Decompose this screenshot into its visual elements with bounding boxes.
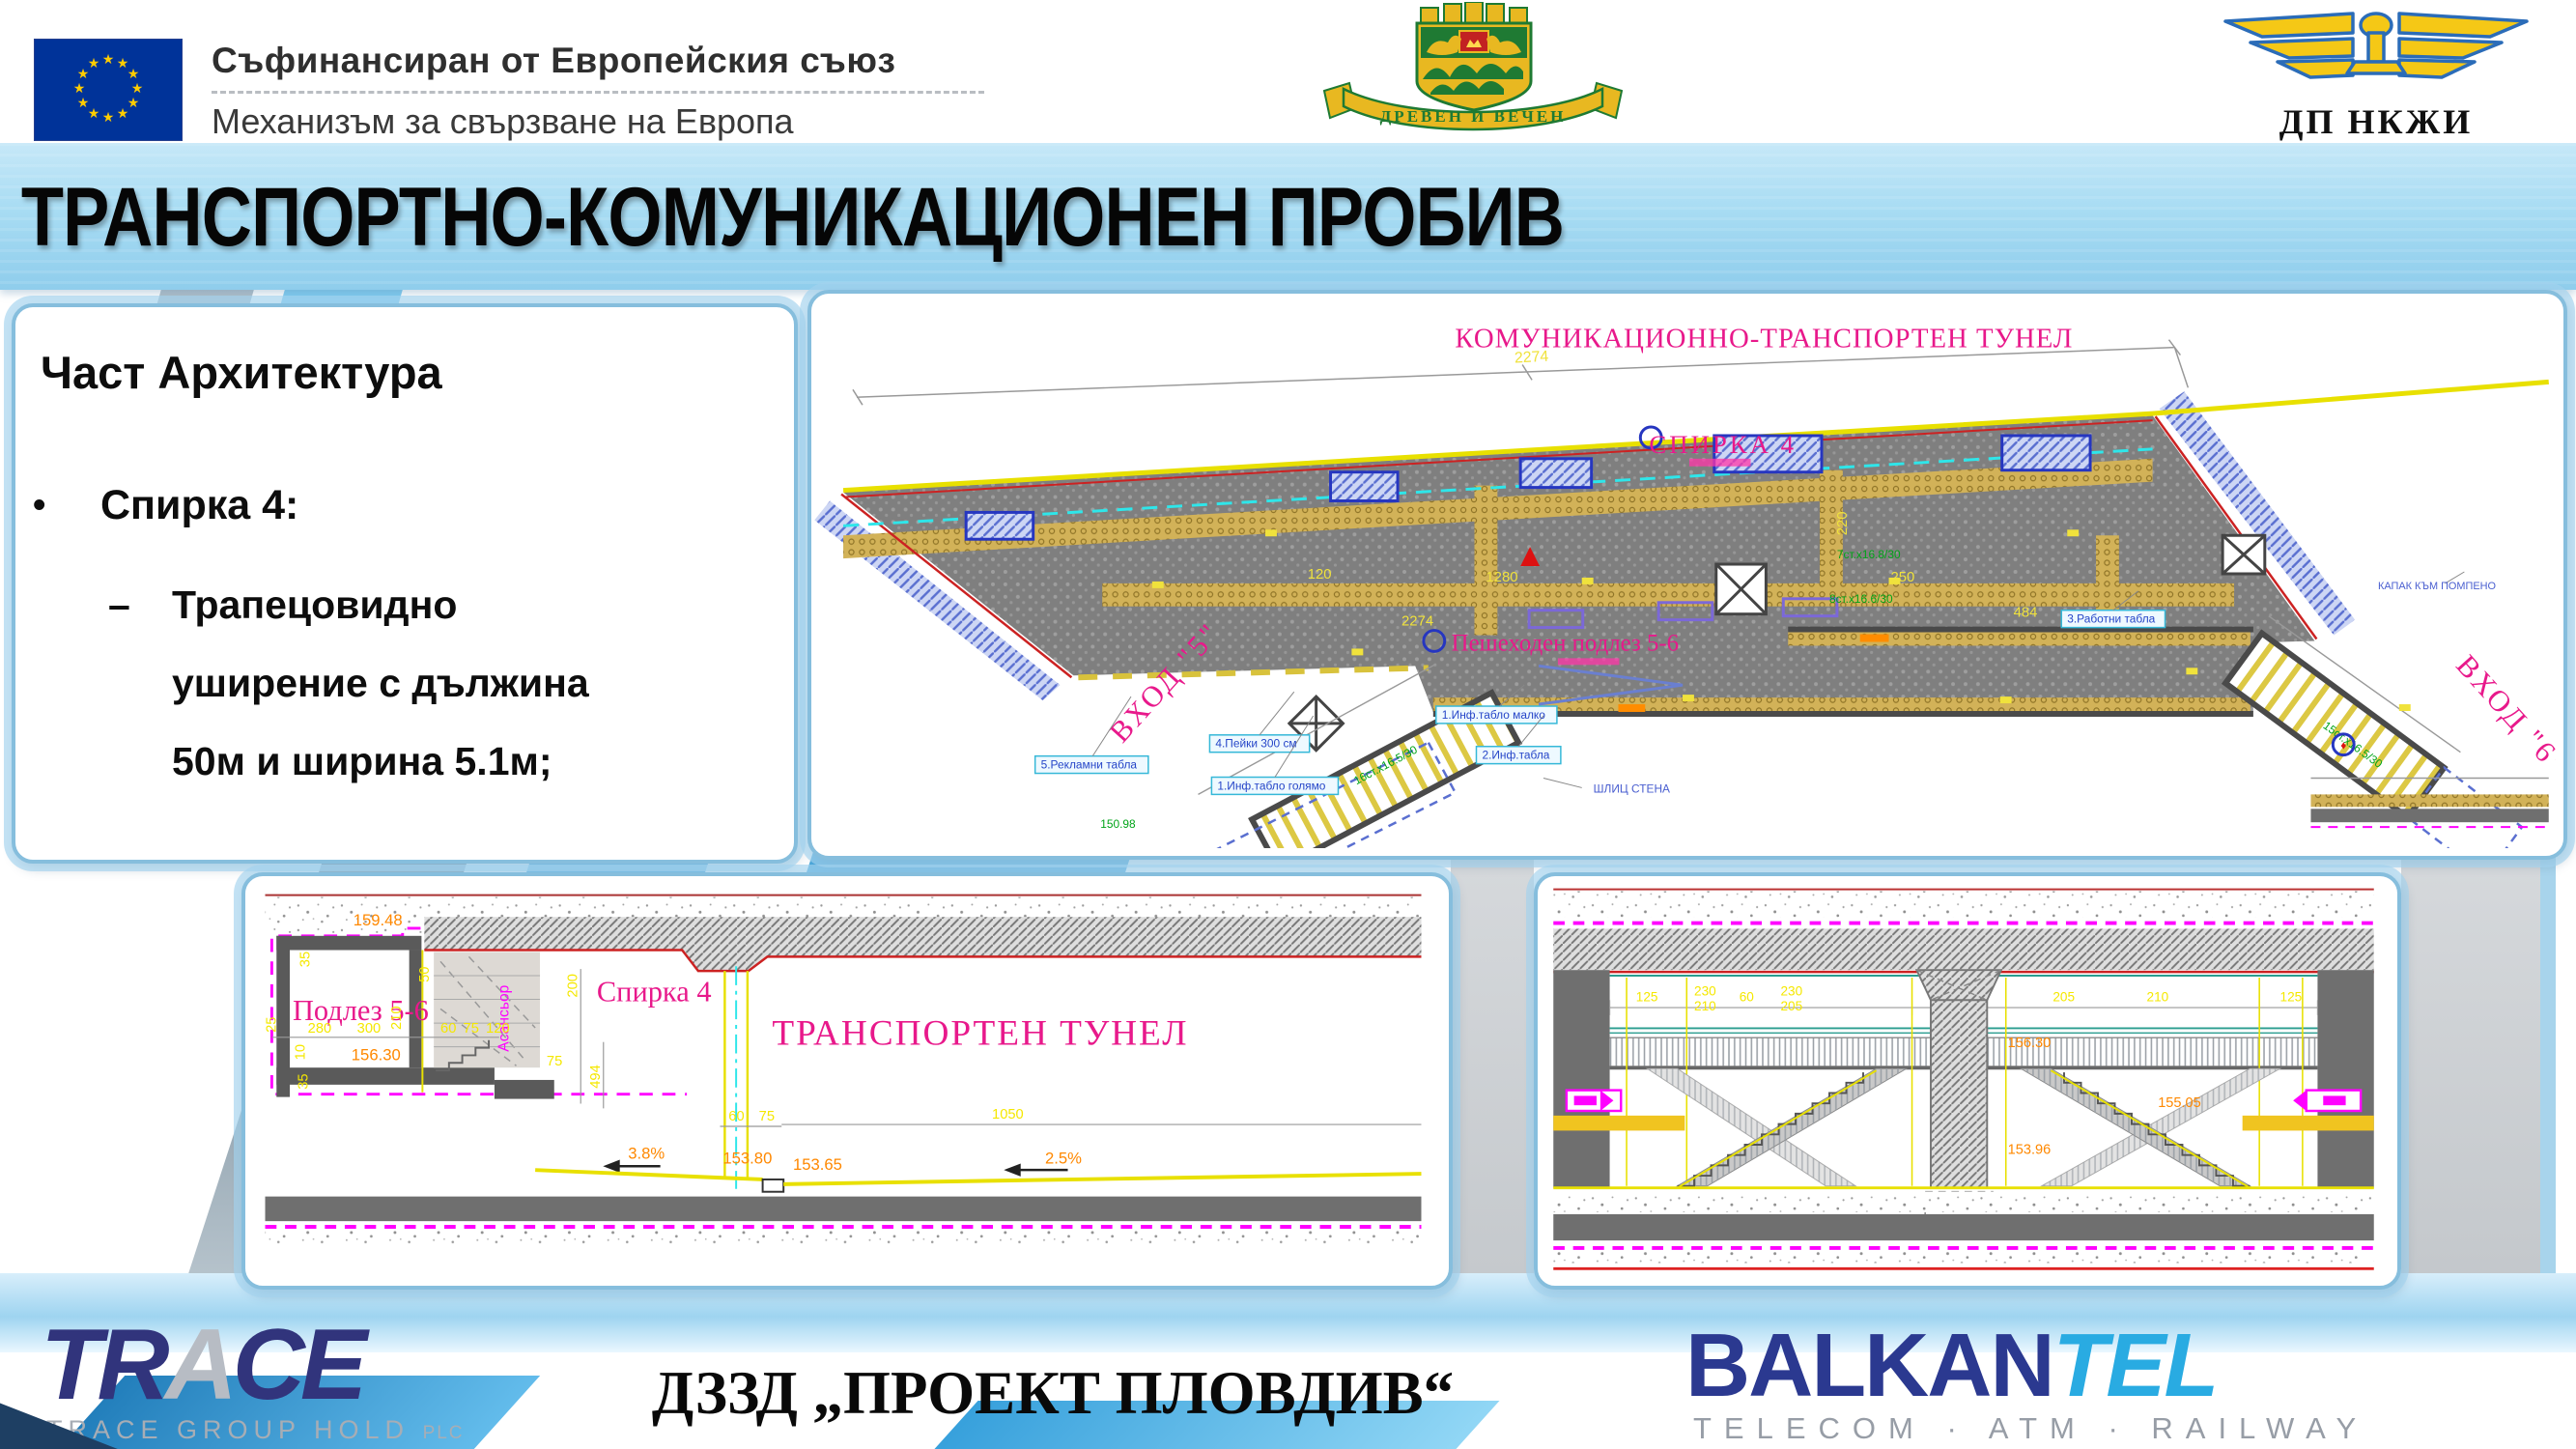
plan-dim-4: 120 [1308, 567, 1332, 582]
s-dim-1: 50 [417, 967, 433, 982]
x-train-arrow-left [1567, 1091, 1621, 1111]
s-elev-0: 159.48 [354, 911, 403, 929]
x-wall-left [1553, 970, 1609, 1187]
plan-note-1: 4.Пейки 300 см [1215, 737, 1296, 751]
plan-note-3: 2.Инф.табла [1482, 749, 1549, 762]
svg-text:★: ★ [88, 105, 100, 121]
architecture-text-panel: Част Архитектура • Спирка 4: – Трапецови… [12, 303, 798, 864]
x-dim-9: 125 [2280, 989, 2303, 1004]
s-dim-9: 10 [294, 1044, 309, 1060]
balkantel-balkan: BALKAN [1685, 1315, 2053, 1415]
eu-logo-block: ★★★ ★★★ ★★★ ★★★ Съфинансиран от Европейс… [34, 39, 984, 142]
presentation-slide: ★★★ ★★★ ★★★ ★★★ Съфинансиран от Европейс… [0, 0, 2576, 1449]
plan-dim-2: 250 [1891, 570, 1915, 585]
svg-text:★: ★ [117, 105, 129, 121]
eu-divider [212, 91, 984, 94]
x-dim-3: 60 [1740, 989, 1755, 1004]
base-slab [266, 1197, 1422, 1222]
x-dim-4: 230 [1780, 983, 1802, 998]
eu-cofinance-text: Съфинансиран от Европейския съюз [212, 41, 984, 81]
eu-flag-icon: ★★★ ★★★ ★★★ ★★★ [34, 39, 183, 141]
s-dim-6: 60 [440, 1021, 456, 1037]
orange-mark-1 [1618, 704, 1645, 712]
x-dim-8: 210 [2147, 989, 2169, 1004]
svg-text:★: ★ [77, 95, 90, 110]
x-dim-0: 125 [1636, 989, 1658, 1004]
sub-line-3: 50м и ширина 5.1м; [172, 723, 589, 801]
s-dim-7: 75 [464, 1021, 479, 1037]
s-dim-12: 75 [547, 1054, 562, 1069]
svg-text:★: ★ [131, 80, 144, 96]
s-slope-0: 3.8% [628, 1144, 665, 1162]
s-dim-11: 200 [565, 974, 580, 998]
trace-subtitle: TRACE GROUP HOLD PLC [46, 1415, 465, 1445]
plan-dim-3: 220 [1835, 511, 1851, 535]
corridor-edge-top [1788, 632, 2250, 646]
x-dim-2: 210 [1694, 999, 1716, 1013]
svg-text:★: ★ [102, 51, 115, 67]
s-dim-16: 1050 [992, 1107, 1024, 1122]
trace-tr: TR [41, 1309, 165, 1421]
balkantel-tel: TEL [2053, 1315, 2218, 1415]
trace-a: A [165, 1309, 233, 1421]
slide-title: ТРАНСПОРТНО-КОМУНИКАЦИОНЕН ПРОБИВ [0, 143, 2164, 266]
svg-text:★: ★ [88, 55, 100, 71]
cross-section-panel: 125 230 210 60 230 205 220 205 210 125 [1534, 872, 2401, 1290]
s-dim-2: 25 [264, 1017, 279, 1033]
railway-label: ДП НКЖИ [2212, 101, 2540, 142]
balkantel-wordmark: BALKANTEL [1685, 1314, 2368, 1417]
right-gray-stripe [2401, 842, 2542, 1296]
s-dim-0: 35 [298, 952, 314, 967]
plan-note-2: 1.Инф.табло голямо [1217, 779, 1325, 792]
plovdiv-motto: ДРЕВЕН И ВЕЧЕН [1380, 107, 1567, 126]
longitudinal-section-panel: Асансьор Подлез 5-6 Спирка 4 ТРАНСПОРТЕН… [241, 872, 1453, 1290]
green-note-1: 8ст.х16.6/30 [1829, 592, 1893, 606]
tunnel-plan-drawing: 2274 [811, 294, 2556, 848]
sub-bullet-row: – Трапецовидно уширение с дължина 50м и … [108, 566, 794, 801]
x-column [1916, 970, 2000, 1216]
plan-note-5: 3.Работни табла [2067, 612, 2155, 626]
title-banner: ТРАНСПОРТНО-КОМУНИКАЦИОНЕН ПРОБИВ [0, 143, 2576, 290]
s-dim-3: 280 [308, 1021, 332, 1037]
svg-text:★: ★ [127, 95, 140, 110]
bullet-row: • Спирка 4: [33, 482, 794, 529]
trace-wordmark: TRACE [41, 1308, 465, 1423]
trace-sub-text: TRACE GROUP HOLD [46, 1415, 410, 1444]
dash-marker: – [108, 566, 172, 801]
x-yellow-band-left [1553, 1116, 1684, 1131]
floor-line-right [783, 1174, 1421, 1184]
x-floor-soil [1553, 1192, 2373, 1212]
s-slope-1: 2.5% [1045, 1149, 1082, 1167]
plovdiv-shield [1417, 23, 1531, 110]
plan-dim-5: 484 [2014, 606, 2038, 621]
s-dim-15: 75 [759, 1109, 775, 1124]
trace-logo: TRACE TRACE GROUP HOLD PLC [41, 1308, 465, 1445]
x-roof-slab [1553, 928, 2373, 970]
sub-line-1: Трапецовидно [172, 566, 589, 644]
floor-line-left [535, 1170, 762, 1179]
section-stop-label: Спирка 4 [597, 976, 712, 1009]
green-elevation: 150.98 [1100, 817, 1136, 831]
x-wall-right [2317, 970, 2373, 1187]
footer: TRACE TRACE GROUP HOLD PLC ДЗЗД „ПРОЕКТ … [0, 1345, 2576, 1449]
railway-logo: ДП НКЖИ [2212, 6, 2540, 141]
s-elev-1: 156.30 [352, 1045, 401, 1064]
plan-note-0: 5.Рекламни табла [1041, 758, 1138, 772]
trace-plc: PLC [423, 1423, 465, 1443]
x-base-slab [1553, 1214, 2373, 1240]
s-elev-2: 153.80 [722, 1149, 772, 1167]
stair-elevator-block [434, 952, 540, 1070]
longitudinal-section-drawing: Асансьор Подлез 5-6 Спирка 4 ТРАНСПОРТЕН… [245, 876, 1441, 1278]
plan-dim-1: 1280 [1486, 570, 1517, 585]
plan-dim-1a: 2274 [1401, 614, 1433, 630]
plan-note-4: 1.Инф.табло малко [1442, 708, 1545, 722]
x-train-arrow-right [2293, 1091, 2361, 1111]
roof-slab [424, 917, 1421, 971]
x-stairs-right [2021, 1068, 2279, 1187]
s-dim-4: 300 [357, 1021, 382, 1037]
x-dim-5: 205 [1780, 999, 1802, 1013]
consortium-name: ДЗЗД „ПРОЕКТ ПЛОВДИВ“ [541, 1358, 1565, 1429]
base-soil [266, 1231, 1422, 1244]
s-dim-14: 60 [728, 1109, 744, 1124]
right-blue-edge [2540, 842, 2556, 1296]
section-tunnel-label: ТРАНСПОРТЕН ТУНЕЛ [772, 1014, 1188, 1054]
panel-heading: Част Архитектура [41, 346, 794, 399]
x-dim-1: 230 [1694, 983, 1716, 998]
x-yellow-band-right [2243, 1116, 2374, 1131]
s-dim-10: 35 [297, 1073, 312, 1089]
svg-text:★: ★ [102, 109, 115, 125]
x-elev-0: 156.30 [2008, 1036, 2052, 1051]
balkantel-subtitle: TELECOM · ATM · RAILWAY [1693, 1411, 2368, 1446]
eu-mechanism-text: Механизъм за свързване на Европа [212, 101, 984, 142]
cross-section-drawing: 125 230 210 60 230 205 220 205 210 125 [1538, 876, 2390, 1278]
svg-text:★: ★ [73, 80, 86, 96]
plan-drawing-panel: 2274 [807, 290, 2567, 860]
drain-sump [763, 1179, 784, 1192]
railway-wings-icon [2212, 6, 2540, 95]
s-dim-5: 210 [389, 1006, 405, 1030]
plan-title: КОМУНИКАЦИОННО-ТРАНСПОРТЕН ТУНЕЛ [1455, 324, 2073, 355]
x-soil-bottom [1553, 1252, 2373, 1264]
plan-underpass-label: Пешеходен подлез 5-6 [1452, 630, 1679, 656]
plan-note-6: ШЛИЦ СТЕНА [1594, 781, 1670, 795]
sub-line-2: уширение с дължина [172, 644, 589, 723]
plovdiv-coat-of-arms: ДРЕВЕН И ВЕЧЕН [1309, 2, 1637, 141]
plan-note-7: КАПАК КЪМ ПОМПЕНО [2378, 581, 2496, 592]
x-elev-2: 153.96 [2008, 1143, 2052, 1158]
bullet-text: Спирка 4: [100, 482, 298, 529]
plovdiv-crown [1421, 2, 1527, 23]
plan-stop-label: СПИРКА 4 [1649, 430, 1797, 459]
underpass-sublabel-mark [1558, 658, 1620, 665]
svg-text:★: ★ [127, 66, 140, 81]
balkantel-logo: BALKANTEL TELECOM · ATM · RAILWAY [1685, 1314, 2368, 1446]
tactile-strip-v1 [1475, 486, 1498, 636]
x-soil-top [1553, 892, 2373, 918]
x-elev-1: 155.05 [2158, 1095, 2201, 1111]
header: ★★★ ★★★ ★★★ ★★★ Съфинансиран от Европейс… [0, 0, 2576, 143]
mid-gray-stripe [1451, 842, 1534, 1325]
elevator-label: Асансьор [496, 984, 513, 1051]
x-dim-7: 205 [2052, 989, 2075, 1004]
bullet-marker: • [33, 482, 100, 529]
s-elev-3: 153.65 [793, 1155, 842, 1174]
stop-sublabel-mark [1689, 459, 1751, 467]
wc-icon-glyph: ♦ [2340, 739, 2346, 753]
s-dim-13: 494 [588, 1065, 604, 1089]
eu-text: Съфинансиран от Европейския съюз Механиз… [212, 39, 984, 142]
sub-bullet-text: Трапецовидно уширение с дължина 50м и ши… [172, 566, 589, 801]
s-dim-8: 120 [486, 1021, 510, 1037]
orange-mark-2 [1860, 635, 1889, 642]
trace-ce: CE [233, 1309, 362, 1421]
green-note-0: 7ст.х16.8/30 [1837, 548, 1901, 561]
entrance-6-label: ВХОД "6" [2449, 649, 2556, 781]
